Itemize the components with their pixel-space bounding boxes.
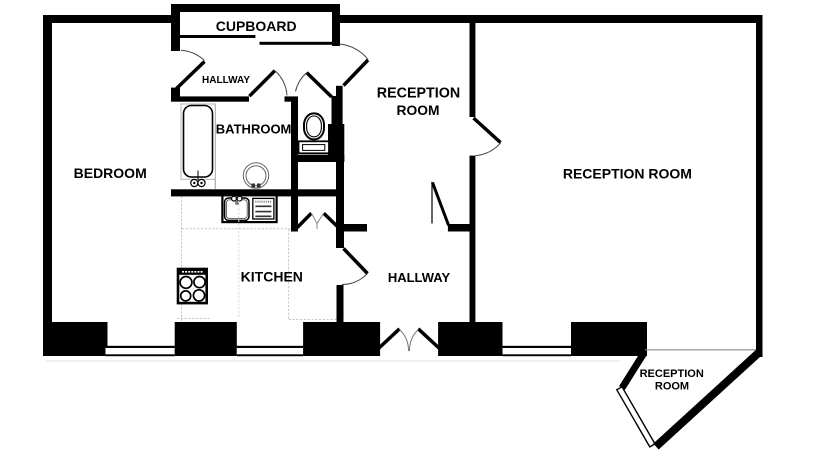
svg-text:ROOM: ROOM	[397, 103, 440, 118]
svg-text:CUPBOARD: CUPBOARD	[216, 18, 297, 34]
svg-text:RECEPTION ROOM: RECEPTION ROOM	[563, 166, 692, 182]
svg-text:KITCHEN: KITCHEN	[241, 269, 303, 285]
svg-text:BATHROOM: BATHROOM	[216, 122, 292, 137]
svg-text:ROOM: ROOM	[655, 380, 689, 392]
svg-text:RECEPTION: RECEPTION	[640, 368, 704, 380]
svg-text:HALLWAY: HALLWAY	[202, 75, 250, 86]
svg-text:RECEPTION: RECEPTION	[377, 86, 460, 102]
svg-text:HALLWAY: HALLWAY	[388, 270, 451, 285]
svg-text:BEDROOM: BEDROOM	[74, 165, 147, 181]
